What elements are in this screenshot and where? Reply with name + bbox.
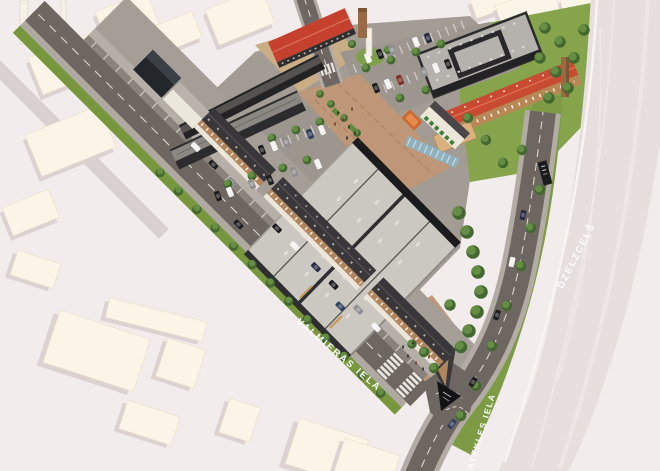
aerial-site-render: VALMIERAS IELA ATEKLES IELA DZELZCEĻŠ [0,0,660,471]
brick-tower [358,8,367,38]
brick-tower-cap [358,8,367,12]
site-render-canvas: VALMIERAS IELA ATEKLES IELA DZELZCEĻŠ [0,0,660,471]
